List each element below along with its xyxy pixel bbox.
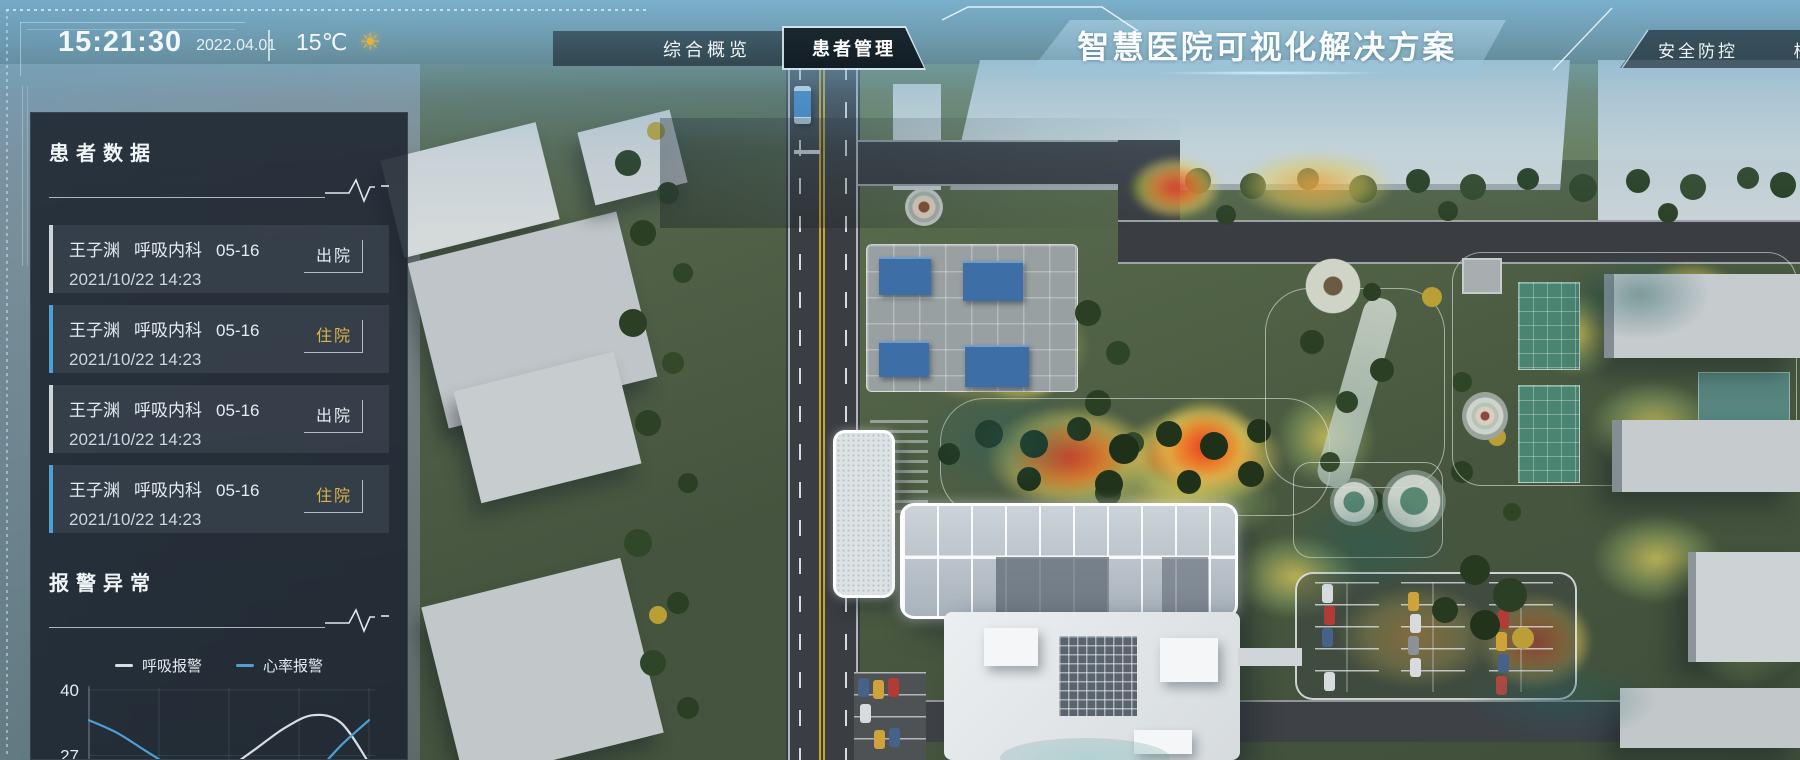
patient-department: 呼吸内科 [134, 401, 202, 420]
time-display: 15:21:30 [58, 26, 182, 59]
legend-dash-icon [236, 664, 254, 667]
svg-text:40: 40 [60, 681, 79, 700]
left-dotted-line [6, 9, 8, 754]
rule-line [49, 627, 325, 628]
patient-department: 呼吸内科 [134, 481, 202, 500]
alarm-section-header: 报警异常 [49, 567, 389, 639]
tab-patient-management-label: 患者管理 [784, 28, 924, 68]
patient-department: 呼吸内科 [134, 241, 202, 260]
patient-bed: 05-16 [216, 241, 259, 260]
ecg-pulse-icon [325, 174, 389, 209]
patient-row[interactable]: 王子渊呼吸内科05-16 2021/10/22 14:23 住院 [49, 465, 389, 533]
top-dotted-line [6, 9, 646, 11]
corner-bracket-line [20, 22, 21, 76]
tab-security[interactable]: 安全防控 [1646, 30, 1750, 68]
section-rule [49, 174, 389, 209]
status-badge: 住院 [304, 480, 363, 513]
alarm-line-chart: 402713 [49, 680, 391, 760]
date-display: 2022.04.01 [196, 37, 276, 55]
tab-patient-management[interactable]: 患者管理 [782, 26, 926, 70]
patient-bed: 05-16 [216, 481, 259, 500]
patient-name: 王子渊 [69, 481, 120, 500]
patient-section-header: 患者数据 [49, 137, 389, 209]
patient-name: 王子渊 [69, 321, 120, 340]
legend-breath-alarm[interactable]: 呼吸报警 [115, 655, 202, 676]
chart-legend: 呼吸报警 心率报警 [49, 655, 389, 676]
legend-label: 心率报警 [263, 655, 323, 676]
page-title: 智慧医院可视化解决方案 [1028, 20, 1506, 74]
rule-line [49, 197, 325, 198]
section-rule [49, 604, 389, 639]
patient-name: 王子渊 [69, 401, 120, 420]
tab-clipped-right[interactable]: 核 [1782, 30, 1800, 68]
status-badge: 出院 [304, 400, 363, 433]
patient-datetime: 2021/10/22 14:23 [69, 270, 389, 290]
status-badge: 住院 [304, 320, 363, 353]
legend-heart-alarm[interactable]: 心率报警 [236, 655, 323, 676]
header-divider [268, 30, 270, 61]
patient-datetime: 2021/10/22 14:23 [69, 510, 389, 530]
patient-datetime: 2021/10/22 14:23 [69, 350, 389, 370]
patient-section-title: 患者数据 [49, 137, 389, 166]
banner-glow [1150, 71, 1390, 75]
patient-bed: 05-16 [216, 321, 259, 340]
patient-department: 呼吸内科 [134, 321, 202, 340]
clock: 15:21:30 2022.04.01 [58, 26, 276, 59]
alarm-section-title: 报警异常 [49, 567, 389, 596]
legend-label: 呼吸报警 [142, 655, 202, 676]
patient-bed: 05-16 [216, 401, 259, 420]
patient-row[interactable]: 王子渊呼吸内科05-16 2021/10/22 14:23 住院 [49, 305, 389, 373]
patient-name: 王子渊 [69, 241, 120, 260]
dashboard-screen: 15:21:30 2022.04.01 15℃ ☀ 综合概览 患者管理 智慧医院… [0, 0, 1800, 760]
ecg-pulse-icon [325, 604, 389, 639]
patient-row[interactable]: 王子渊呼吸内科05-16 2021/10/22 14:23 出院 [49, 385, 389, 453]
corner-bracket-line [20, 22, 245, 23]
svg-text:27: 27 [60, 746, 79, 760]
patient-data-panel: 患者数据 王子渊呼吸内科05-16 2021/10/22 14:23 出院 王子 [30, 112, 408, 760]
side-accent-lines [22, 86, 23, 266]
patient-datetime: 2021/10/22 14:23 [69, 430, 389, 450]
status-badge: 出院 [304, 240, 363, 273]
temperature-value: 15℃ [296, 29, 347, 56]
weather-widget: 15℃ ☀ [296, 28, 381, 57]
legend-dash-icon [115, 664, 133, 667]
tab-overview[interactable]: 综合概览 [612, 31, 802, 66]
patient-row[interactable]: 王子渊呼吸内科05-16 2021/10/22 14:23 出院 [49, 225, 389, 293]
sun-icon: ☀ [359, 28, 381, 57]
